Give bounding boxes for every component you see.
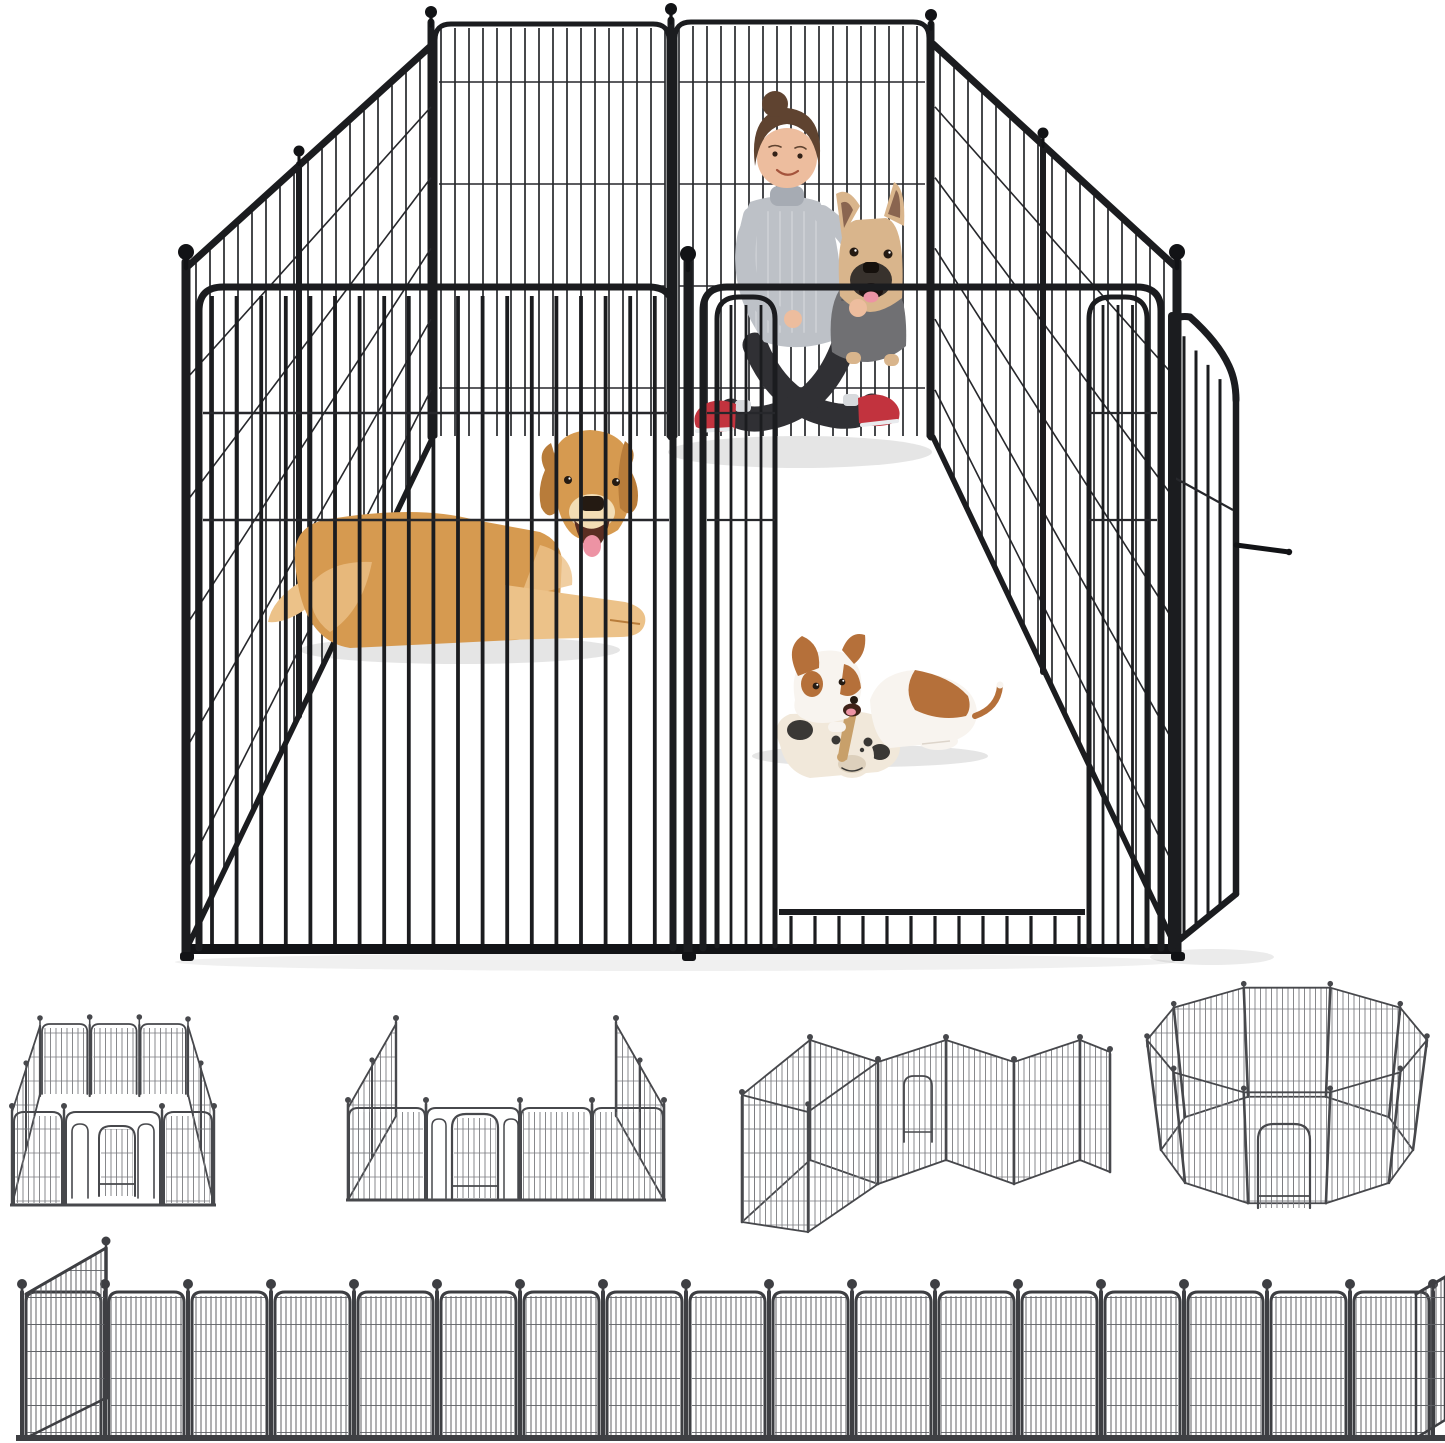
playpen-product-image — [0, 0, 1445, 1443]
open-gate-door — [1150, 316, 1292, 965]
product-photo-canvas — [0, 0, 1445, 1443]
config-thumbnail-two-room-zigzag-pen — [739, 1034, 1113, 1232]
config-thumbnail-rectangle-pen — [9, 1014, 217, 1205]
jack-russell-puppy-with-plush-cow — [752, 634, 1004, 778]
fence-panels-row — [16, 1237, 1445, 1439]
right-end-panel — [1416, 1277, 1445, 1438]
config-thumbnail-octagon-pen — [1144, 981, 1430, 1208]
door-latch — [1236, 545, 1292, 555]
configuration-thumbnails — [9, 981, 1430, 1232]
config-thumbnail-open-sided-pen — [345, 1015, 667, 1200]
main-playpen — [175, 3, 1292, 971]
right-side-wall — [933, 44, 1177, 950]
